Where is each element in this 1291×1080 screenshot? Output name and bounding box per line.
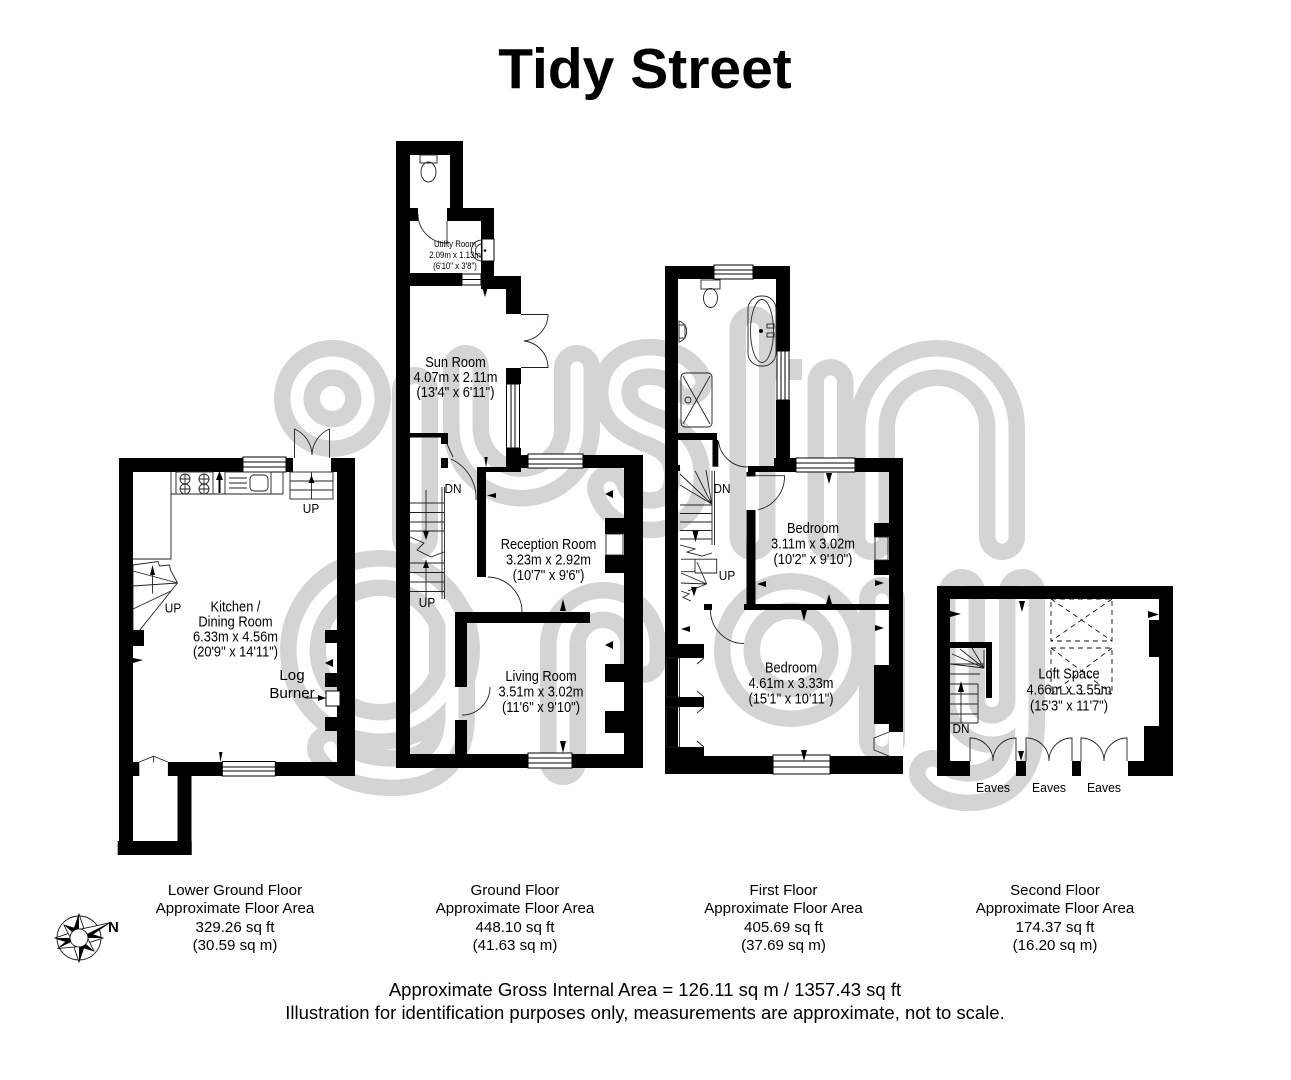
svg-text:174.37 sq ft: 174.37 sq ft	[1016, 919, 1096, 936]
svg-text:329.26 sq ft: 329.26 sq ft	[196, 919, 276, 936]
svg-text:First Floor: First Floor	[750, 882, 818, 899]
svg-text:Approximate Floor Area: Approximate Floor Area	[436, 900, 595, 917]
svg-text:Approximate Floor Area: Approximate Floor Area	[156, 900, 315, 917]
svg-text:(11'6" x 9'10"): (11'6" x 9'10")	[502, 699, 580, 716]
svg-text:Eaves: Eaves	[1087, 781, 1121, 795]
svg-text:Lower Ground Floor: Lower Ground Floor	[168, 882, 302, 899]
svg-text:N: N	[108, 919, 119, 936]
svg-text:3.51m x 3.02m: 3.51m x 3.02m	[499, 684, 584, 701]
svg-text:(16.20 sq m): (16.20 sq m)	[1013, 937, 1098, 954]
svg-text:(41.63 sq m): (41.63 sq m)	[473, 937, 558, 954]
svg-text:(10'2" x 9'10"): (10'2" x 9'10")	[774, 551, 853, 568]
svg-text:Tidy Street: Tidy Street	[498, 37, 792, 101]
svg-text:448.10 sq ft: 448.10 sq ft	[476, 919, 556, 936]
svg-text:Living Room: Living Room	[505, 668, 576, 685]
svg-text:Eaves: Eaves	[976, 781, 1010, 795]
svg-text:Second Floor: Second Floor	[1010, 882, 1100, 899]
svg-text:4.61m x 3.33m: 4.61m x 3.33m	[749, 675, 834, 692]
svg-text:(30.59 sq m): (30.59 sq m)	[193, 937, 278, 954]
svg-text:405.69 sq ft: 405.69 sq ft	[744, 919, 824, 936]
svg-text:Approximate Gross Internal Are: Approximate Gross Internal Area = 126.11…	[389, 979, 901, 1000]
svg-text:(13'4" x 6'11"): (13'4" x 6'11")	[417, 384, 495, 401]
svg-text:2.09m x 1.13m: 2.09m x 1.13m	[429, 250, 481, 260]
svg-text:DN: DN	[445, 482, 462, 496]
svg-text:Burner: Burner	[269, 685, 314, 702]
svg-text:UP: UP	[419, 596, 435, 610]
svg-text:(20'9" x 14'11"): (20'9" x 14'11")	[193, 644, 278, 661]
svg-text:Loft Space: Loft Space	[1038, 666, 1099, 683]
svg-text:DN: DN	[714, 482, 731, 496]
svg-text:Reception Room: Reception Room	[501, 536, 597, 553]
svg-text:Approximate Floor Area: Approximate Floor Area	[976, 900, 1135, 917]
svg-text:Bedroom: Bedroom	[765, 660, 817, 677]
svg-text:UP: UP	[303, 502, 319, 516]
svg-text:(15'3" x 11'7"): (15'3" x 11'7")	[1030, 698, 1108, 715]
svg-text:4.66m x 3.55m: 4.66m x 3.55m	[1027, 682, 1112, 699]
svg-text:UP: UP	[165, 602, 181, 616]
svg-text:Log: Log	[279, 667, 304, 684]
svg-text:Ground Floor: Ground Floor	[471, 882, 560, 899]
svg-text:(37.69 sq m): (37.69 sq m)	[741, 937, 826, 954]
svg-text:3.11m x 3.02m: 3.11m x 3.02m	[771, 536, 855, 553]
svg-text:3.23m x 2.92m: 3.23m x 2.92m	[506, 552, 591, 569]
svg-text:Illustration for identificatio: Illustration for identification purposes…	[285, 1002, 1004, 1023]
svg-text:UP: UP	[719, 569, 735, 583]
svg-text:Bedroom: Bedroom	[787, 520, 839, 537]
svg-text:(6'10" x 3'8"): (6'10" x 3'8")	[433, 261, 477, 271]
svg-text:Utility Room: Utility Room	[434, 239, 476, 249]
svg-text:DN: DN	[953, 722, 970, 736]
svg-text:(10'7" x 9'6"): (10'7" x 9'6")	[513, 567, 585, 584]
svg-text:(15'1" x 10'11"): (15'1" x 10'11")	[748, 691, 833, 708]
svg-text:Approximate Floor Area: Approximate Floor Area	[704, 900, 863, 917]
svg-text:Eaves: Eaves	[1032, 781, 1066, 795]
